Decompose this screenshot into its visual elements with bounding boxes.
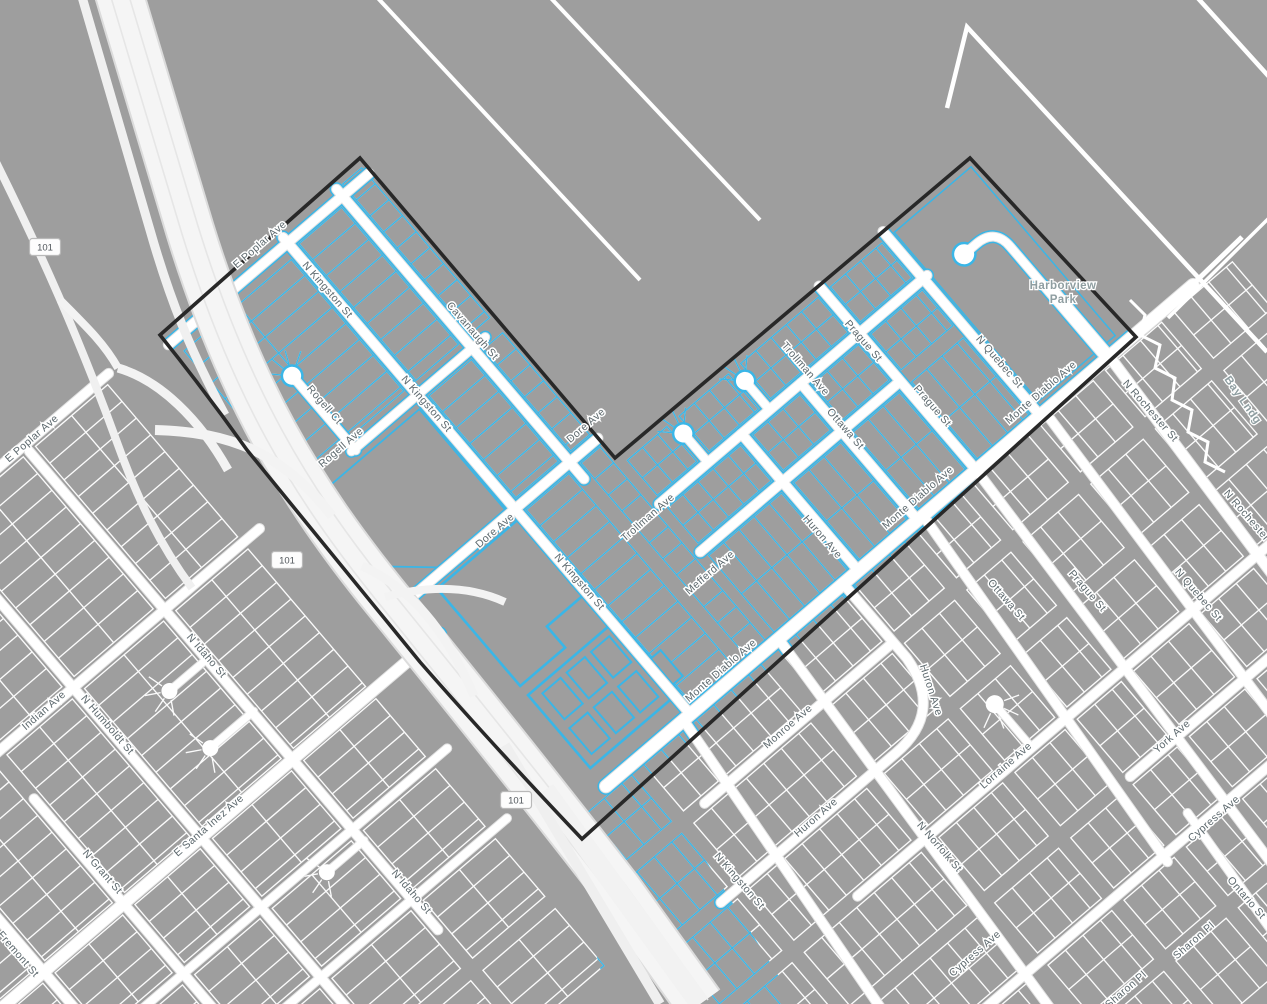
shield-number: 101 [279, 556, 295, 567]
parcel-map[interactable]: E Poplar AveE Poplar AveN Kingston StN K… [0, 0, 1267, 1004]
route-101-shield: 101 [501, 792, 532, 809]
route-101-shield: 101 [272, 552, 303, 569]
park-label-line2: Park [1050, 294, 1077, 306]
shield-number: 101 [508, 796, 524, 807]
shield-number: 101 [37, 243, 53, 254]
route-101-shield: 101 [30, 239, 61, 256]
map-canvas[interactable]: E Poplar AveE Poplar AveN Kingston StN K… [0, 0, 1267, 1004]
park-label-line1: Harborview [1030, 280, 1097, 292]
